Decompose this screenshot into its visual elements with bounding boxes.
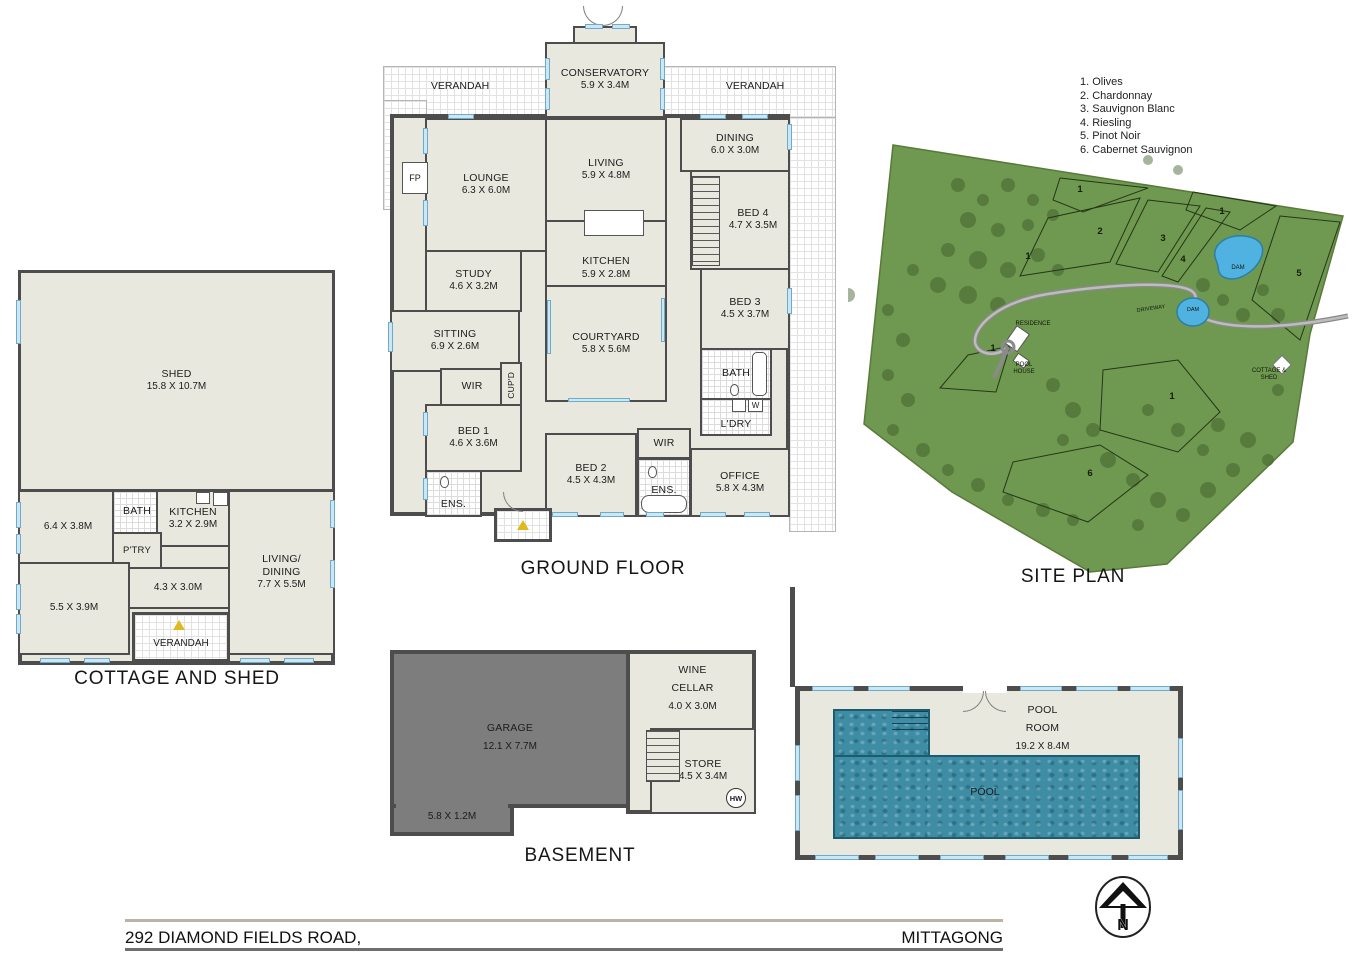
sink [213,492,228,506]
block-number: 2 [1092,226,1108,237]
window [700,512,726,517]
window [423,478,428,500]
room-dims: 5.9 X 3.4M [581,80,629,93]
window [1178,738,1183,778]
pool-label: POOL [955,786,1015,798]
toilet [440,476,449,488]
basement-title: BASEMENT [430,845,730,867]
vineyard-legend: 1. Olives 2. Chardonnay 3. Sauvignon Bla… [1080,76,1193,157]
window [284,658,314,663]
suburb-text: MITTAGONG [800,928,1003,948]
room-name: LOUNGE [463,172,509,185]
window [787,288,792,314]
basement-staircase [646,730,680,782]
cottage-title: COTTAGE AND SHED [27,668,327,690]
room-cottage-bed-a: 6.4 X 3.8M [18,490,118,564]
window [1020,686,1062,691]
room-dims: 6.3 X 6.0M [462,185,510,198]
garage-strip-dims: 5.8 X 1.2M [400,811,504,822]
legend-item: 6. Cabernet Sauvignon [1080,144,1193,158]
gf-verandah-label-left: VERANDAH [400,80,520,92]
room-living: LIVING 5.9 X 4.8M [545,118,667,222]
room-name: BED 1 [458,425,489,438]
window [612,24,630,29]
window [868,686,910,691]
room-conservatory: CONSERVATORY 5.9 X 3.4M [545,42,665,118]
room-name: P'TRY [123,545,151,557]
room-name: COURTYARD [572,331,639,344]
room-name: POOL ROOM [1026,704,1059,734]
window [600,512,624,517]
washer-label: W [752,401,760,410]
room-dims: 4.3 X 3.0M [154,582,202,595]
washer: W [748,399,763,412]
room-dims: 7.7 X 5.5M [257,579,305,592]
room-dims: 5.8 X 5.6M [582,344,630,357]
stove [196,492,210,504]
gf-verandah-deck-right [789,117,836,532]
room-ensuite-1: ENS. [425,470,482,517]
site-plan-title: SITE PLAN [923,566,1223,588]
window [700,114,726,119]
room-courtyard: COURTYARD 5.8 X 5.6M [545,285,667,402]
footer-rule-bottom [125,948,1003,951]
room-dims: 3.2 X 2.9M [169,519,217,532]
window [16,300,21,344]
window [1128,855,1168,860]
window [330,500,335,528]
room-cottage-living-dining: LIVING/ DINING 7.7 X 5.5M [228,490,335,655]
room-shed: SHED 15.8 X 10.7M [18,270,335,492]
toilet [730,384,739,396]
room-name: SITTING [434,328,477,341]
legend-item: 2. Chardonnay [1080,90,1193,104]
room-office: OFFICE 5.8 X 4.3M [690,448,790,517]
room-dims: 4.5 X 3.7M [721,309,769,322]
room-dining: DINING 6.0 X 3.0M [680,118,790,172]
room-dims: 6.0 X 3.0M [711,145,759,158]
window [545,58,550,80]
window [448,114,474,119]
window [875,855,919,860]
room-dims: 6.4 X 3.8M [44,521,92,534]
window [16,584,21,610]
room-name: LIVING [588,157,624,170]
room-lounge: LOUNGE 6.3 X 6.0M [425,118,547,252]
window [240,658,270,663]
tub-appliance [732,399,746,412]
room-dims: 4.7 X 3.5M [729,220,777,233]
room-name: GARAGE [487,722,533,734]
window [568,398,630,402]
block-number: 1 [1214,206,1230,217]
pool-house-label: POOL HOUSE [1002,362,1046,376]
entry-arrow-icon [517,520,529,530]
window [940,855,984,860]
window [423,128,428,154]
window [646,512,664,517]
room-wir-main: WIR [440,368,504,406]
hw-label: HW [730,794,743,803]
staircase [692,176,720,266]
cottage-verandah-label: VERANDAH [135,638,227,649]
block-number: 1 [1072,184,1088,195]
room-name: WIR [461,380,482,393]
room-dims: 6.9 X 2.6M [431,341,479,354]
room-name: LIVING/ DINING [262,553,301,579]
room-name: STUDY [455,268,492,281]
window [16,614,21,634]
floorplan-sheet: VERANDAH VERANDAH CONSERVATORY 5.9 X 3.4… [0,0,1354,960]
north-letter: N [1117,917,1129,934]
room-name: STORE [685,758,722,771]
residence-label: RESIDENCE [1004,321,1062,328]
address-text: 292 DIAMOND FIELDS ROAD, [125,928,361,948]
ground-floor-title: GROUND FLOOR [453,558,753,580]
window [585,24,603,29]
room-dims: 15.8 X 10.7M [147,381,206,394]
window [16,534,21,554]
legend-item: 5. Pinot Noir [1080,130,1193,144]
room-name: DINING [716,132,754,145]
window [423,200,428,226]
room-dims: 4.5 X 3.4M [679,771,727,784]
window [40,658,70,663]
window [815,855,859,860]
bathtub [641,495,687,513]
room-name: CONSERVATORY [561,67,649,80]
room-name: BATH [123,505,151,518]
dam-label: DAM [1180,307,1206,313]
hot-water-unit: HW [726,788,746,808]
room-name: SHED [162,368,192,381]
room-dims: 19.2 X 8.4M [1016,741,1070,752]
pool-steps [892,711,928,735]
room-name: KITCHEN [169,506,217,519]
window [660,58,665,80]
block-number: 6 [1082,468,1098,479]
door-arc [583,6,603,26]
legend-item: 4. Riesling [1080,117,1193,131]
legend-item: 3. Sauvignon Blanc [1080,103,1193,117]
room-name: BED 2 [575,462,606,475]
window [545,88,550,110]
block-number: 3 [1155,233,1171,244]
footer-rule-top [125,919,1003,922]
block-number: 4 [1175,254,1191,265]
window [1005,855,1049,860]
window [423,412,428,436]
north-arrow-icon: N [1092,874,1154,940]
garage-label: GARAGE 12.1 X 7.7M [420,718,600,754]
room-name: WIR [653,437,674,450]
fireplace-label: FP [409,173,421,183]
block-number: 5 [1291,268,1307,279]
cottage-shed-label: COTTAGE & SHED [1244,368,1294,382]
window [16,502,21,528]
block-number: 1 [985,343,1001,354]
room-name: KITCHEN [582,255,630,268]
bathtub [752,352,767,396]
window [744,512,770,517]
site-plan-map [848,130,1353,580]
block-number: 1 [1020,251,1036,262]
room-dims: 4.0 X 3.0M [668,701,716,712]
window [84,658,110,663]
room-dims: 12.1 X 7.7M [483,741,537,752]
garage-seam [396,802,508,810]
room-bed2: BED 2 4.5 X 4.3M [545,433,637,517]
block-number: 1 [1164,391,1180,402]
room-name: BED 3 [729,296,760,309]
room-dims: 4.6 X 3.2M [449,281,497,294]
window [330,560,335,588]
window [812,686,854,691]
dam-label: DAM [1222,265,1254,272]
window [552,512,578,517]
window [661,298,665,342]
room-bed3: BED 3 4.5 X 3.7M [700,268,790,350]
room-dims: 5.9 X 4.8M [582,170,630,183]
room-cottage-bath: BATH [112,490,162,534]
room-name: BATH [722,367,750,380]
pool-seam [836,757,927,836]
gf-verandah-label-right: VERANDAH [695,80,815,92]
entry-arrow-icon [173,620,185,630]
room-name: BED 4 [737,207,768,220]
room-cottage-hall: 4.3 X 3.0M [126,567,230,609]
room-name: CUP'D [506,372,517,399]
room-cupboard: CUP'D [500,362,522,408]
window [1130,686,1170,691]
fireplace: FP [402,162,428,194]
room-name: WINE CELLAR [671,664,713,694]
gf-pool-connector-wall [790,587,795,687]
wine-cellar-label: WINE CELLAR 4.0 X 3.0M [640,660,745,714]
kitchen-island [584,210,644,236]
window [1178,790,1183,830]
window [1076,686,1118,691]
room-dims: 4.5 X 4.3M [567,475,615,488]
window [795,795,800,831]
window [787,124,792,150]
room-dims: 5.5 X 3.9M [50,602,98,615]
toilet [648,466,657,478]
room-study: STUDY 4.6 X 3.2M [425,250,522,312]
room-dims: 4.6 X 3.6M [449,438,497,451]
window [388,322,393,352]
window [795,745,800,781]
room-name: L'DRY [721,418,752,431]
room-dims: 5.8 X 4.3M [716,483,764,496]
room-wir-bed2: WIR [637,428,691,459]
legend-item: 1. Olives [1080,76,1193,90]
window [660,88,665,110]
window [1068,855,1112,860]
pool-room-label: POOL ROOM 19.2 X 8.4M [985,700,1100,754]
room-cottage-bed-b: 5.5 X 3.9M [18,562,130,655]
room-name: ENS. [441,498,466,511]
room-dims: 5.9 X 2.8M [582,269,630,282]
window [742,114,768,119]
door-arc [603,6,623,26]
window [547,300,551,354]
room-name: OFFICE [720,470,760,483]
room-bed1: BED 1 4.6 X 3.6M [425,404,522,472]
